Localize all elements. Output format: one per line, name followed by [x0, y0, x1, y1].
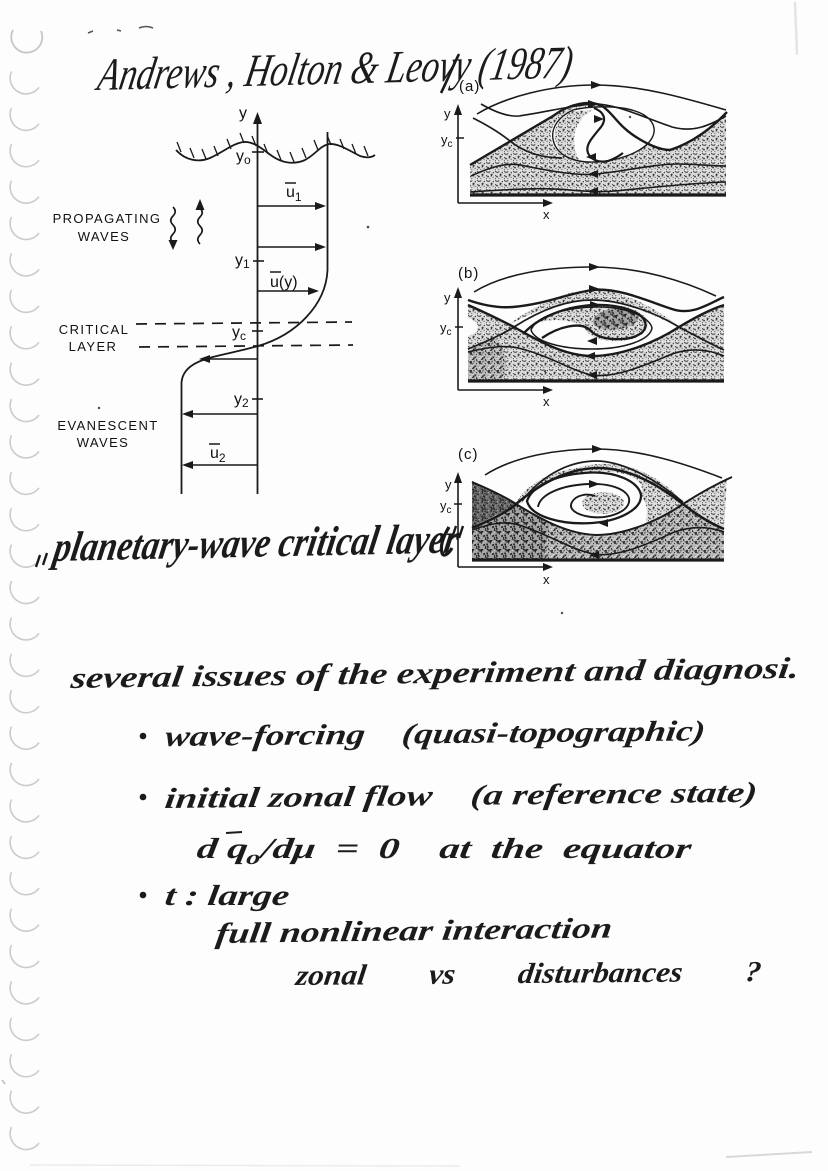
svg-text:y: y: [444, 106, 451, 121]
svg-text:t : large: t : large: [163, 880, 292, 912]
svg-text:wave-forcing (quasi-topograph: wave-forcing (quasi-topographic): [163, 715, 707, 753]
svg-text:(a): (a): [459, 78, 480, 95]
svg-text:CRITICAL: CRITICAL: [59, 322, 129, 337]
svg-text:y: y: [239, 105, 247, 122]
svg-text:x: x: [543, 207, 550, 222]
svg-text:WAVES: WAVES: [78, 229, 131, 244]
svg-text:(b): (b): [458, 265, 479, 282]
svg-text:initial zonal flow (a referen: initial zonal flow (a reference state): [163, 777, 759, 815]
svg-text:x: x: [543, 394, 550, 409]
svg-text:PROPAGATING: PROPAGATING: [53, 211, 162, 226]
svg-text:yc: yc: [440, 320, 452, 338]
svg-text:several issues of the experime: several issues of the experiment and dia…: [68, 651, 801, 695]
svg-text:EVANESCENT: EVANESCENT: [57, 418, 158, 433]
svg-text:yc: yc: [232, 324, 246, 343]
svg-text:yo: yo: [236, 148, 251, 167]
svg-text:y: y: [445, 477, 452, 492]
svg-text:y: y: [444, 290, 451, 305]
svg-text:u(y): u(y): [270, 274, 298, 291]
svg-text:WAVES: WAVES: [77, 435, 130, 450]
svg-text:y1: y1: [235, 252, 250, 271]
svg-text:u1: u1: [286, 184, 302, 204]
svg-text:yc: yc: [440, 498, 452, 516]
svg-text:d qo/dμ = 0 at the equator: d qo/dμ = 0 at the equator: [194, 833, 694, 869]
svg-text:yc: yc: [441, 132, 453, 150]
svg-text:full nonlinear interaction: full nonlinear interaction: [214, 913, 614, 950]
svg-text:Andrews , Holton & Leovy (1987: Andrews , Holton & Leovy (1987): [92, 38, 577, 101]
svg-text:zonal vs disturbances ?: zonal vs disturbances ?: [293, 956, 763, 992]
svg-text:LAYER: LAYER: [69, 339, 118, 354]
svg-text:(c): (c): [458, 446, 479, 463]
svg-text:y2: y2: [234, 391, 249, 410]
svg-text:planetary-wave critical layer: planetary-wave critical layer: [47, 516, 463, 571]
svg-text:u2: u2: [210, 445, 226, 465]
svg-text:x: x: [543, 572, 550, 587]
